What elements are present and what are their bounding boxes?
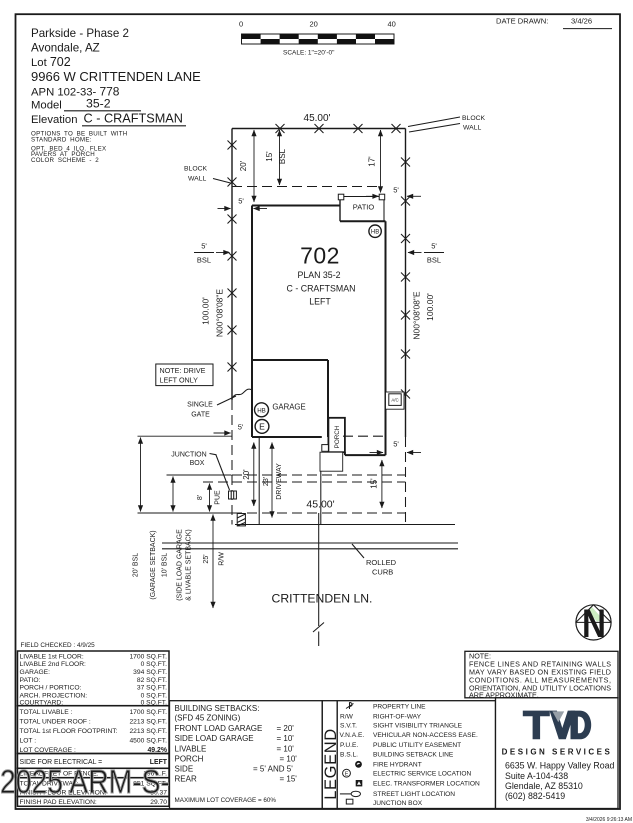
svg-text:FIELD CHECKED : 4/9/25: FIELD CHECKED : 4/9/25 bbox=[21, 642, 96, 649]
svg-text:(602) 882-5419: (602) 882-5419 bbox=[505, 791, 565, 801]
svg-text:1700 SQ.FT.: 1700 SQ.FT. bbox=[129, 709, 167, 716]
svg-text:SCALE: 1"=20’-0": SCALE: 1"=20’-0" bbox=[283, 50, 335, 57]
svg-text:DRIVEWAY: DRIVEWAY bbox=[276, 463, 283, 500]
svg-text:3/4/2026 9:26:13 AM: 3/4/2026 9:26:13 AM bbox=[586, 817, 632, 823]
svg-text:PLAN 35-2: PLAN 35-2 bbox=[297, 270, 340, 280]
svg-text:702: 702 bbox=[300, 243, 340, 269]
svg-text:2025 ARM-S-: 2025 ARM-S- bbox=[0, 764, 170, 801]
svg-text:PATIO: PATIO bbox=[353, 203, 375, 212]
svg-text:= 15': = 15' bbox=[280, 774, 298, 783]
svg-text:(SFD 45 ZONING): (SFD 45 ZONING) bbox=[175, 714, 241, 723]
svg-text:DESIGN SERVICES: DESIGN SERVICES bbox=[502, 748, 613, 757]
svg-text:PORCH: PORCH bbox=[334, 425, 341, 448]
svg-text:= 10': = 10' bbox=[277, 734, 295, 743]
svg-text:17': 17' bbox=[368, 156, 377, 167]
svg-text:= 10': = 10' bbox=[280, 754, 298, 763]
svg-text:JUNCTION BOX: JUNCTION BOX bbox=[373, 800, 423, 807]
svg-text:R/W: R/W bbox=[340, 713, 354, 720]
svg-text:V.N.A.E.: V.N.A.E. bbox=[340, 732, 365, 739]
svg-text:LIVABLE: LIVABLE bbox=[175, 744, 207, 753]
svg-text:0: 0 bbox=[239, 20, 243, 29]
svg-text:Avondale, AZ: Avondale, AZ bbox=[31, 42, 100, 55]
svg-text:HB: HB bbox=[257, 407, 266, 414]
svg-text:A/C: A/C bbox=[391, 397, 398, 402]
svg-text:FRONT LOAD GARAGE: FRONT LOAD GARAGE bbox=[175, 724, 263, 733]
svg-text:JUNCTION: JUNCTION bbox=[171, 452, 206, 459]
svg-text:100.00': 100.00' bbox=[201, 297, 211, 325]
svg-text:20': 20' bbox=[239, 160, 248, 171]
svg-text:6635 W. Happy Valley Road: 6635 W. Happy Valley Road bbox=[505, 761, 614, 771]
svg-text:82 SQ.FT.: 82 SQ.FT. bbox=[137, 677, 167, 684]
svg-text:3/4/26: 3/4/26 bbox=[571, 17, 592, 26]
svg-text:20: 20 bbox=[310, 20, 318, 29]
svg-text:TOTAL 1st FLOOR FOOTPRINT:: TOTAL 1st FLOOR FOOTPRINT: bbox=[20, 728, 118, 735]
svg-text:5': 5' bbox=[238, 197, 244, 206]
svg-text:R/W: R/W bbox=[219, 552, 226, 566]
svg-text:20' BSL: 20' BSL bbox=[133, 553, 140, 577]
svg-text:MAXIMUM LOT COVERAGE = 60%: MAXIMUM LOT COVERAGE = 60% bbox=[175, 797, 277, 804]
svg-text:10' BSL: 10' BSL bbox=[162, 553, 169, 577]
svg-text:REAR: REAR bbox=[175, 774, 197, 783]
svg-text:15': 15' bbox=[370, 478, 379, 489]
svg-text:WALL: WALL bbox=[463, 125, 481, 132]
svg-text:5': 5' bbox=[431, 242, 437, 251]
svg-text:B.S.L.: B.S.L. bbox=[340, 752, 358, 759]
svg-text:TOTAL UNDER ROOF :: TOTAL UNDER ROOF : bbox=[20, 718, 91, 725]
svg-text:C - CRAFTSMAN: C - CRAFTSMAN bbox=[287, 283, 356, 293]
svg-text:PORCH / PORTICO:: PORCH / PORTICO: bbox=[20, 685, 82, 692]
svg-text:8': 8' bbox=[197, 495, 204, 500]
svg-text:ROLLED: ROLLED bbox=[366, 558, 397, 567]
svg-text:9966 W CRITTENDEN LANE: 9966 W CRITTENDEN LANE bbox=[31, 69, 201, 84]
svg-text:COLOR SCHEME - 2: COLOR SCHEME - 2 bbox=[31, 157, 99, 164]
svg-text:N00°08'08"E: N00°08'08"E bbox=[412, 291, 422, 340]
svg-text:0 SQ.FT.: 0 SQ.FT. bbox=[141, 661, 168, 668]
svg-text:0 SQ.FT.: 0 SQ.FT. bbox=[141, 692, 168, 699]
svg-text:BSL: BSL bbox=[278, 148, 287, 164]
svg-text:VEHICULAR NON-ACCESS EASE.: VEHICULAR NON-ACCESS EASE. bbox=[373, 732, 478, 739]
svg-text:LEFT ONLY: LEFT ONLY bbox=[160, 375, 199, 384]
svg-text:= 5' AND 5': = 5' AND 5' bbox=[253, 764, 293, 773]
svg-text:Glendale, AZ 85310: Glendale, AZ 85310 bbox=[505, 781, 583, 791]
svg-text:ELECTRIC SERVICE LOCATION: ELECTRIC SERVICE LOCATION bbox=[373, 771, 472, 778]
svg-text:5': 5' bbox=[393, 186, 399, 195]
svg-text:BLOCK: BLOCK bbox=[462, 115, 486, 122]
svg-text:CURB: CURB bbox=[372, 568, 393, 577]
svg-text:Parkside - Phase 2: Parkside - Phase 2 bbox=[31, 27, 129, 40]
svg-text:LOT :: LOT : bbox=[20, 738, 37, 745]
svg-text:BLOCK: BLOCK bbox=[184, 166, 208, 173]
svg-text:RIGHT-OF-WAY: RIGHT-OF-WAY bbox=[373, 713, 422, 720]
svg-text:WALL: WALL bbox=[188, 176, 206, 183]
svg-text:SIDE LOAD GARAGE: SIDE LOAD GARAGE bbox=[175, 734, 254, 743]
svg-text:DATE DRAWN:: DATE DRAWN: bbox=[496, 17, 548, 26]
svg-text:20': 20' bbox=[242, 469, 251, 480]
svg-text:BUILDING SETBACKS:: BUILDING SETBACKS: bbox=[175, 704, 260, 713]
svg-text:C - CRAFTSMAN: C - CRAFTSMAN bbox=[84, 112, 183, 126]
svg-text:NOTE: DRIVE: NOTE: DRIVE bbox=[160, 366, 206, 375]
svg-text:PROPERTY LINE: PROPERTY LINE bbox=[373, 704, 426, 711]
svg-text:15': 15' bbox=[265, 151, 274, 162]
svg-text:SIDE: SIDE bbox=[175, 764, 194, 773]
svg-text:GATE: GATE bbox=[191, 412, 210, 419]
svg-text:100.00': 100.00' bbox=[425, 293, 435, 321]
svg-text:N00°08'08"E: N00°08'08"E bbox=[215, 289, 225, 338]
svg-text:BSL: BSL bbox=[427, 256, 441, 265]
svg-text:Lot 702: Lot 702 bbox=[31, 55, 71, 69]
svg-text:PATIO:: PATIO: bbox=[20, 677, 41, 684]
svg-text:STREET LIGHT LOCATION: STREET LIGHT LOCATION bbox=[373, 791, 455, 798]
svg-text:GARAGE: GARAGE bbox=[272, 403, 305, 412]
svg-text:(GARAGE SETBACK): (GARAGE SETBACK) bbox=[150, 530, 157, 599]
svg-text:PUE: PUE bbox=[215, 490, 222, 505]
svg-text:N: N bbox=[582, 601, 606, 646]
svg-text:PORCH: PORCH bbox=[175, 754, 204, 763]
svg-text:4500 SQ.FT.: 4500 SQ.FT. bbox=[129, 738, 167, 745]
svg-text:2213 SQ.FT.: 2213 SQ.FT. bbox=[129, 728, 167, 735]
svg-text:ELEC. TRANSFORMER LOCATION: ELEC. TRANSFORMER LOCATION bbox=[373, 781, 480, 788]
svg-text:FIRE HYDRANT: FIRE HYDRANT bbox=[373, 762, 422, 769]
svg-text:P.U.E.: P.U.E. bbox=[340, 742, 358, 749]
svg-text:CRITTENDEN LN.: CRITTENDEN LN. bbox=[272, 592, 373, 606]
svg-text:E: E bbox=[259, 422, 265, 432]
svg-text:35-2: 35-2 bbox=[86, 97, 111, 111]
svg-text:5': 5' bbox=[238, 423, 244, 432]
svg-text:(SIDE LOAD GARAGE: (SIDE LOAD GARAGE bbox=[177, 529, 184, 601]
svg-text:= 10': = 10' bbox=[277, 744, 295, 753]
svg-text:1700 SQ.FT.: 1700 SQ.FT. bbox=[129, 653, 167, 660]
svg-text:25': 25' bbox=[203, 554, 210, 563]
svg-text:TOTAL LIVABLE :: TOTAL LIVABLE : bbox=[20, 709, 73, 716]
svg-text:SIGHT VISIBILITY TRIANGLE: SIGHT VISIBILITY TRIANGLE bbox=[373, 723, 463, 730]
svg-text:Suite A-104-438: Suite A-104-438 bbox=[505, 771, 568, 781]
svg-text:37 SQ.FT.: 37 SQ.FT. bbox=[137, 685, 167, 692]
svg-text:LIVABLE 2nd FLOOR:: LIVABLE 2nd FLOOR: bbox=[20, 661, 87, 668]
svg-text:PUBLIC UTILITY EASEMENT: PUBLIC UTILITY EASEMENT bbox=[373, 742, 461, 749]
svg-text:LEFT: LEFT bbox=[309, 297, 331, 307]
svg-text:394 SQ.FT.: 394 SQ.FT. bbox=[133, 669, 167, 676]
svg-text:E: E bbox=[345, 772, 349, 778]
svg-text:BUILDING SETBACK LINE: BUILDING SETBACK LINE bbox=[373, 752, 454, 759]
svg-text:ARCH. PROJECTION:: ARCH. PROJECTION: bbox=[20, 692, 88, 699]
svg-text:5': 5' bbox=[393, 440, 399, 449]
svg-text:S.V.T.: S.V.T. bbox=[340, 723, 357, 730]
svg-text:2213 SQ.FT.: 2213 SQ.FT. bbox=[129, 718, 167, 725]
svg-text:Model: Model bbox=[31, 100, 62, 112]
svg-text:5': 5' bbox=[201, 242, 207, 251]
svg-text:STANDARD HOME:: STANDARD HOME: bbox=[31, 137, 92, 144]
svg-text:Elevation: Elevation bbox=[31, 114, 77, 126]
svg-text:45.00': 45.00' bbox=[304, 113, 331, 124]
svg-text:GARAGE:: GARAGE: bbox=[20, 669, 51, 676]
svg-text:LIVABLE 1st FLOOR:: LIVABLE 1st FLOOR: bbox=[20, 653, 84, 660]
svg-text:23': 23' bbox=[263, 477, 270, 486]
svg-text:LEGEND: LEGEND bbox=[322, 728, 340, 799]
svg-text:BOX: BOX bbox=[190, 460, 205, 467]
svg-text:40: 40 bbox=[388, 20, 396, 29]
svg-text:& LIVABLE SETBACK): & LIVABLE SETBACK) bbox=[186, 529, 193, 600]
svg-text:HB: HB bbox=[371, 230, 379, 236]
svg-text:SINGLE: SINGLE bbox=[187, 402, 213, 409]
svg-text:= 20': = 20' bbox=[277, 724, 295, 733]
svg-text:BSL: BSL bbox=[197, 256, 211, 265]
